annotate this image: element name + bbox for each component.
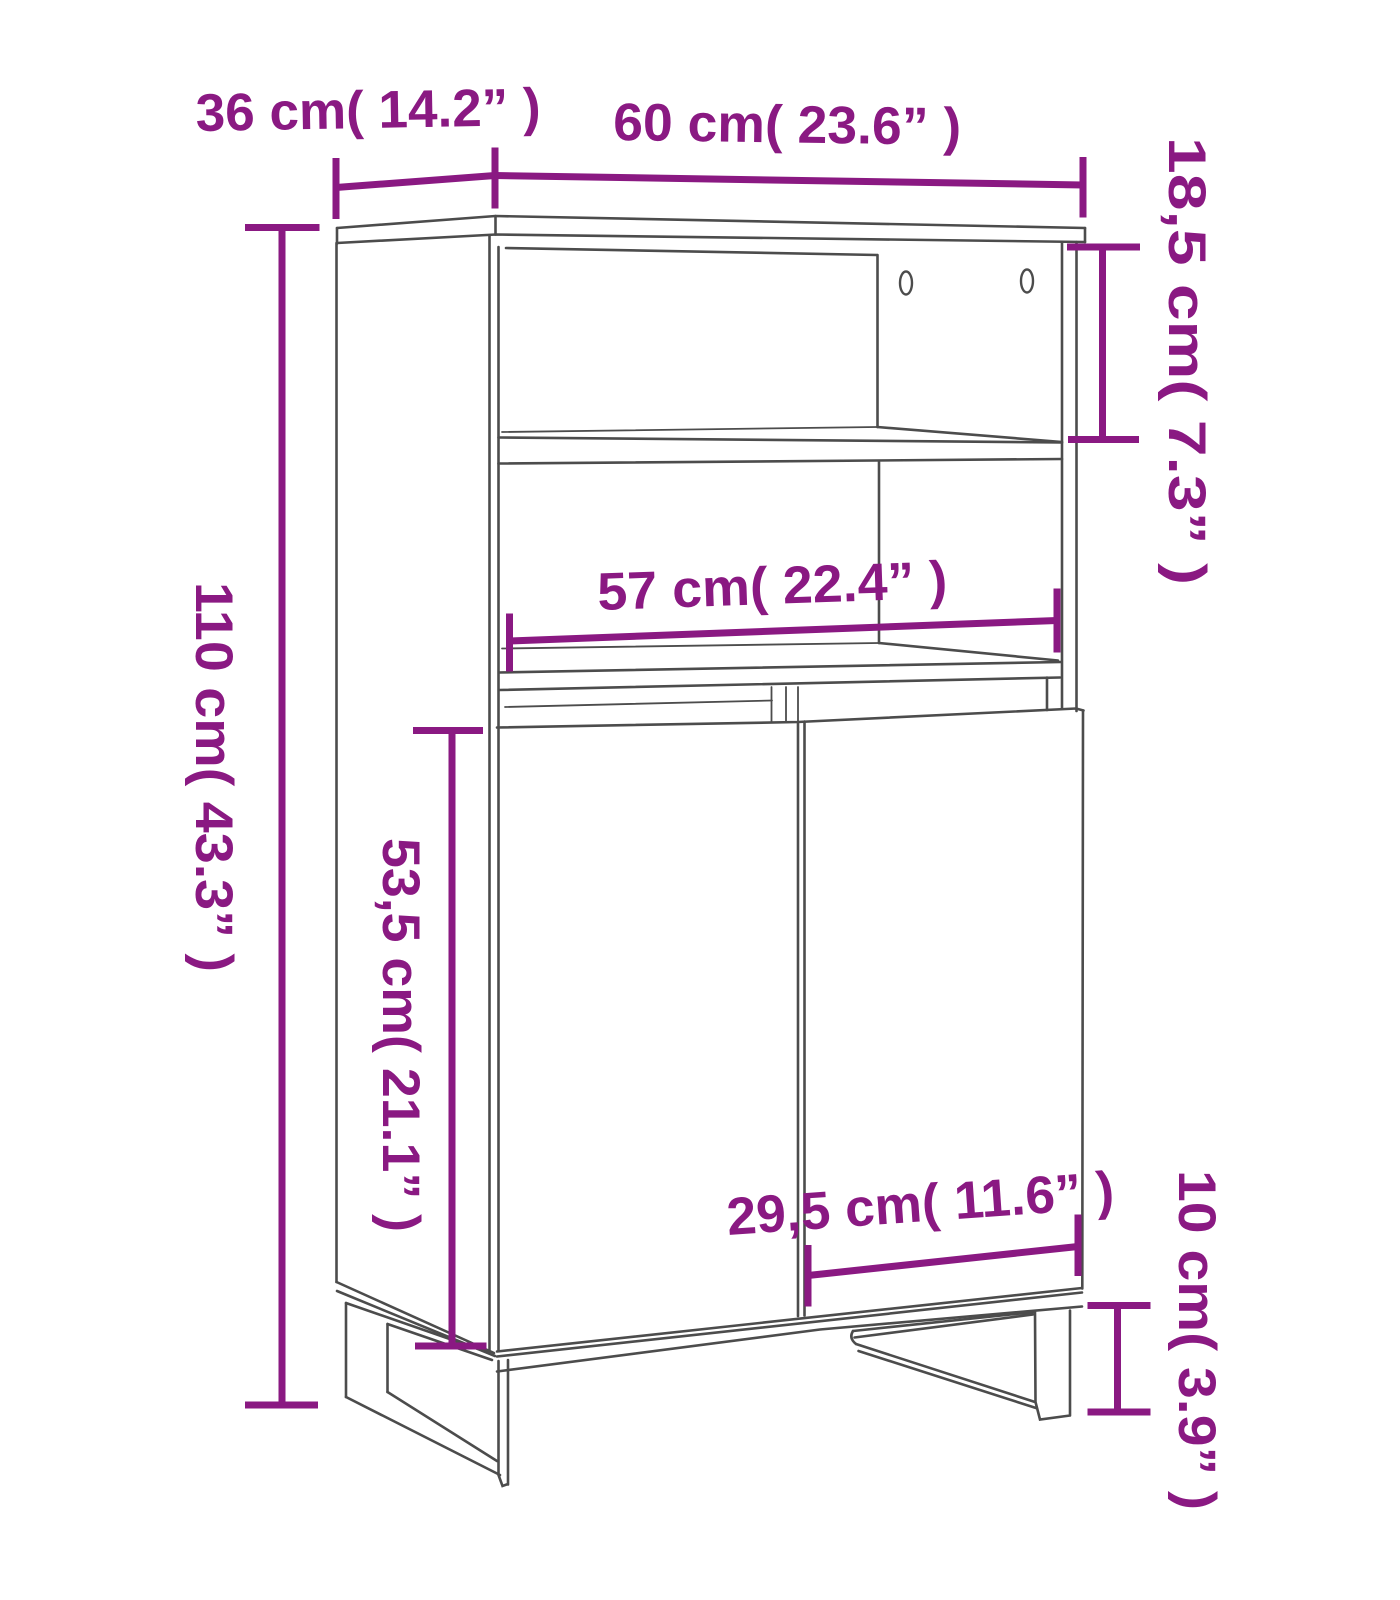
svg-text:57 cm( 22.4” ): 57 cm( 22.4” )	[596, 551, 948, 622]
svg-text:10 cm( 3.9” ): 10 cm( 3.9” )	[1167, 1170, 1226, 1510]
svg-text:29,5 cm( 11.6” ): 29,5 cm( 11.6” )	[725, 1161, 1116, 1247]
svg-text:60 cm( 23.6” ): 60 cm( 23.6” )	[613, 93, 962, 157]
svg-text:53,5 cm( 21.1” ): 53,5 cm( 21.1” )	[371, 838, 430, 1232]
svg-text:36 cm( 14.2” ): 36 cm( 14.2” )	[195, 78, 541, 143]
svg-text:18,5 cm( 7.3” ): 18,5 cm( 7.3” )	[1157, 137, 1216, 585]
svg-text:110 cm( 43.3” ): 110 cm( 43.3” )	[184, 582, 243, 972]
